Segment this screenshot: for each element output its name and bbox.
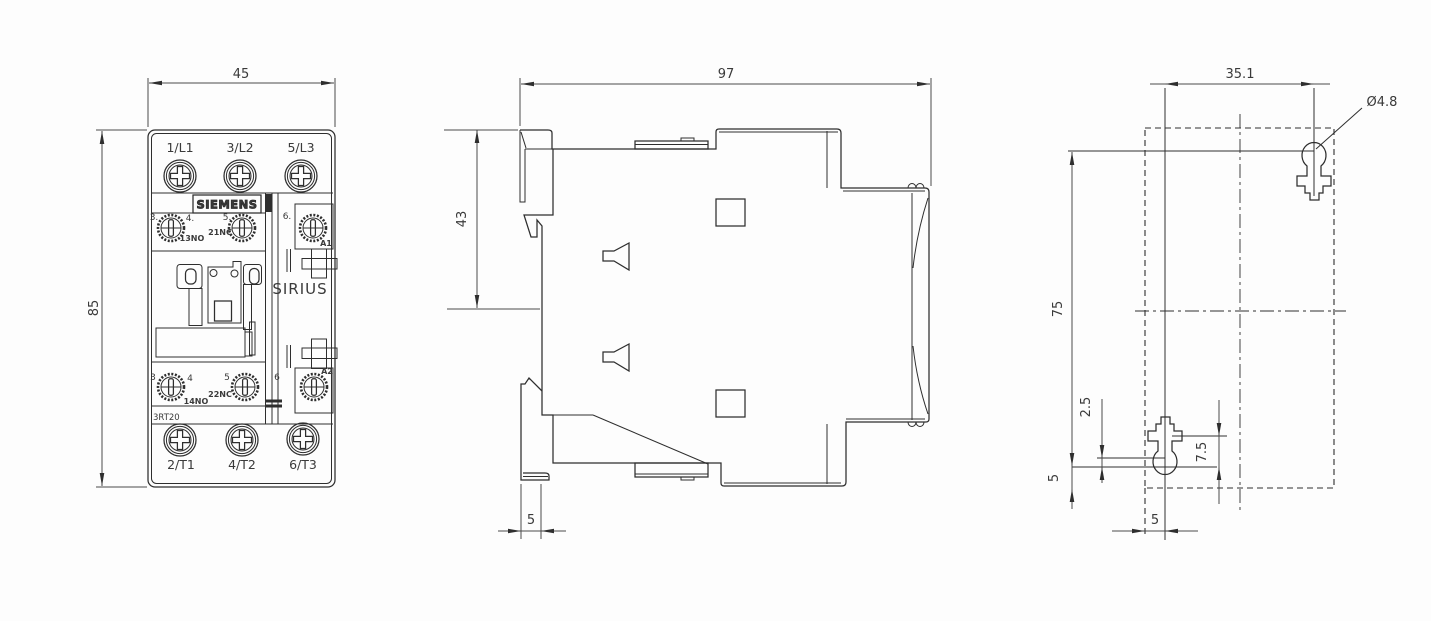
dim-hole-spacing-h: 35.1: [1226, 67, 1255, 82]
divider-latch-mark: [266, 194, 273, 212]
screw-coil-A1: [300, 215, 326, 241]
front-view: SIEMENS 1/L1 3/L2 5/L3 3. 4. 5. 6. 13NO …: [87, 67, 337, 487]
aux-label-22NC: 22NC: [208, 390, 232, 399]
terminal-label-5L3: 5/L3: [287, 140, 314, 155]
aux-label-13NO: 13NO: [180, 234, 205, 243]
dim-offset-7-5: 7.5: [1195, 442, 1210, 463]
dim-side-foot: 5: [527, 513, 535, 528]
aux-num-4-bottom: 4: [187, 374, 193, 384]
screw-terminal-6T3: [287, 423, 319, 455]
mounting-view: 35.1 Ø4.8 75 2.5 5: [1047, 67, 1397, 540]
aux-num-3-bottom: 3: [150, 373, 156, 383]
screw-terminal-5L3: [285, 160, 317, 192]
side-foot-dimension: 5: [498, 484, 566, 539]
terminal-label-2T1: 2/T1: [167, 457, 195, 472]
screw-aux-21NC: [229, 215, 255, 241]
lever-icon-lower: [603, 344, 629, 371]
aux-label-14NO: 14NO: [184, 397, 209, 406]
front-width-dimension: 45: [148, 67, 335, 127]
terminal-label-3L2: 3/L2: [226, 140, 253, 155]
offset-5-left-dimension: 5: [1047, 474, 1074, 502]
side-body-outline: [520, 129, 929, 486]
offset-2-5-dimension: 2.5: [1079, 397, 1104, 483]
side-window-upper: [716, 199, 745, 226]
aux-num-5-bottom: 5: [224, 373, 230, 383]
coil-label-A2: A2: [321, 367, 333, 376]
aux-num-4-top: 4.: [186, 214, 195, 224]
front-height-dimension: 85: [87, 130, 147, 487]
aux-label-21NC: 21NC: [208, 228, 232, 237]
offset-5-bottom-dimension: 5: [1112, 513, 1198, 533]
terminal-label-1L1: 1/L1: [166, 140, 193, 155]
side-depth-dimension: 97: [520, 67, 931, 186]
screw-terminal-1L1: [164, 160, 196, 192]
lever-icon-upper: [603, 243, 629, 270]
screw-aux-14NO: [158, 374, 184, 400]
dim-hole-diameter: Ø4.8: [1367, 95, 1398, 110]
mounting-outline: [1145, 128, 1334, 488]
sirius-label: SIRIUS: [272, 280, 327, 298]
coil-label-A1: A1: [320, 239, 332, 248]
screw-coil-A2: [301, 374, 327, 400]
aux-num-6-top: 6.: [283, 212, 292, 222]
drawing-svg: SIEMENS 1/L1 3/L2 5/L3 3. 4. 5. 6. 13NO …: [0, 0, 1431, 621]
dimension-drawing: SIEMENS 1/L1 3/L2 5/L3 3. 4. 5. 6. 13NO …: [0, 0, 1431, 621]
screw-terminal-3L2: [224, 160, 256, 192]
dim-side-rail: 43: [455, 211, 470, 228]
hole-diameter-callout: Ø4.8: [1316, 95, 1397, 149]
din-clip-foot: [521, 378, 549, 480]
front-label-field: [156, 328, 245, 357]
dim-offset-5-bottom: 5: [1151, 513, 1159, 528]
dim-front-height: 85: [87, 300, 102, 317]
dim-side-depth: 97: [718, 67, 735, 82]
aux-num-6-bottom: 6: [274, 373, 280, 383]
side-view: 97 43 5: [444, 67, 931, 539]
terminal-label-6T3: 6/T3: [289, 457, 317, 472]
aux-num-3-top: 3.: [150, 213, 159, 223]
dim-offset-5-left: 5: [1047, 474, 1062, 482]
hole-spacing-h-dimension: 35.1: [1150, 67, 1330, 86]
dim-front-width: 45: [233, 67, 250, 82]
dim-offset-2-5: 2.5: [1079, 397, 1094, 418]
siemens-logo: SIEMENS: [196, 198, 257, 212]
screw-terminal-4T2: [226, 424, 258, 456]
screw-aux-22NC: [232, 374, 258, 400]
side-window-lower: [716, 390, 745, 417]
terminal-label-4T2: 4/T2: [228, 457, 256, 472]
front-mechanism-detail: [156, 262, 262, 358]
dim-hole-spacing-v: 75: [1051, 301, 1066, 318]
screw-terminal-2T1: [164, 424, 196, 456]
hole-spacing-v-dimension: 75: [1051, 152, 1074, 509]
model-label: 3RT20: [153, 413, 180, 423]
